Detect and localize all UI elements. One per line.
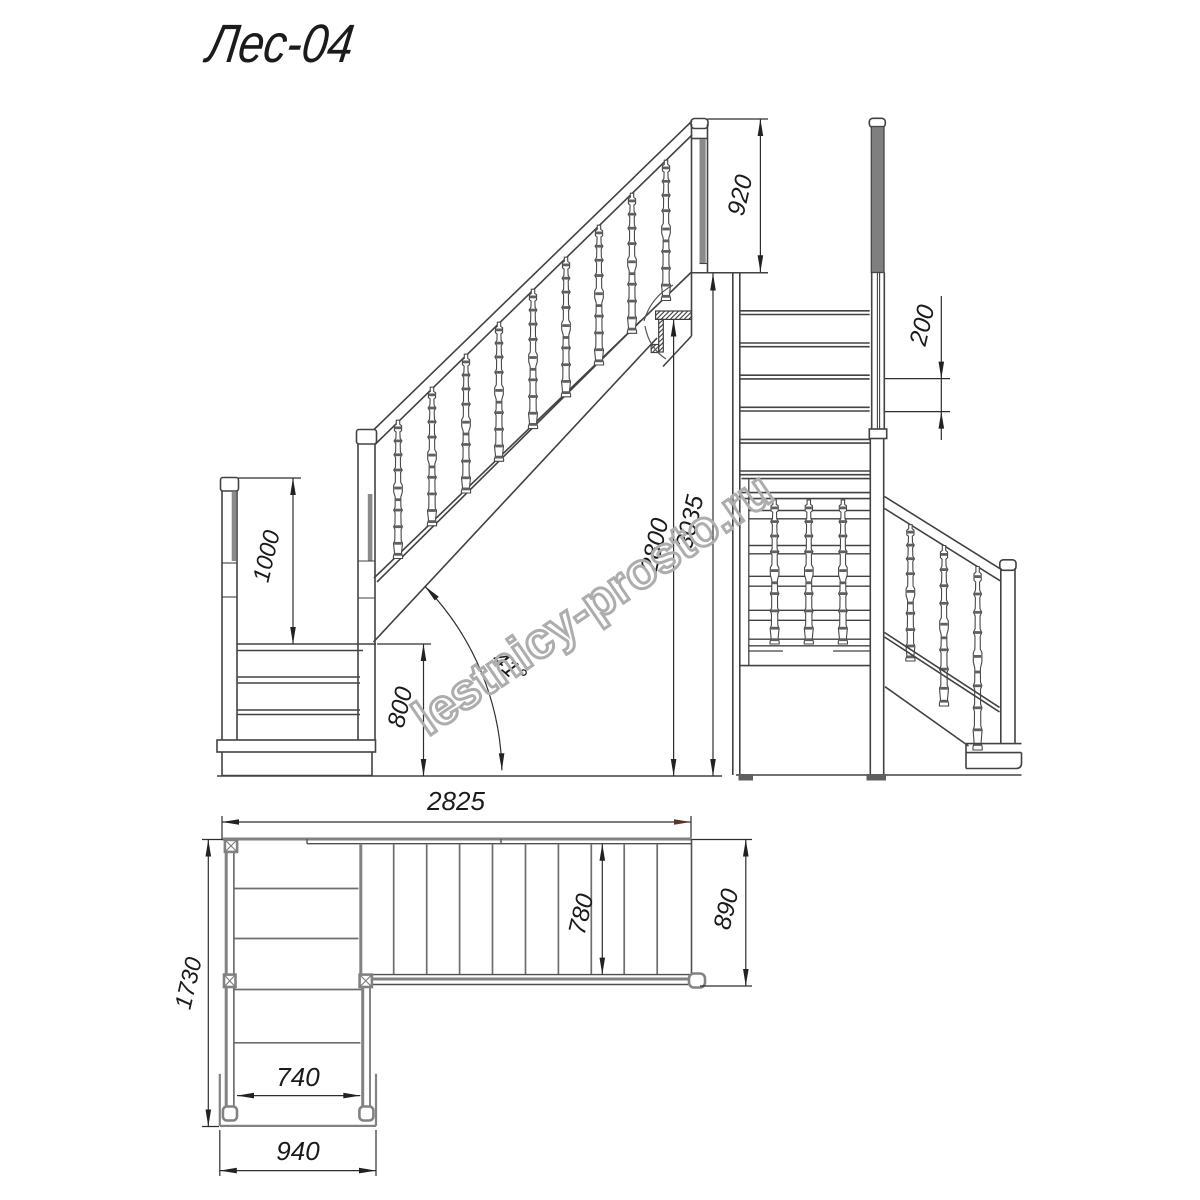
- svg-text:2825: 2825: [426, 786, 485, 816]
- svg-text:940: 940: [276, 1136, 320, 1166]
- svg-text:Лес-04: Лес-04: [201, 14, 358, 74]
- svg-text:740: 740: [276, 1062, 320, 1092]
